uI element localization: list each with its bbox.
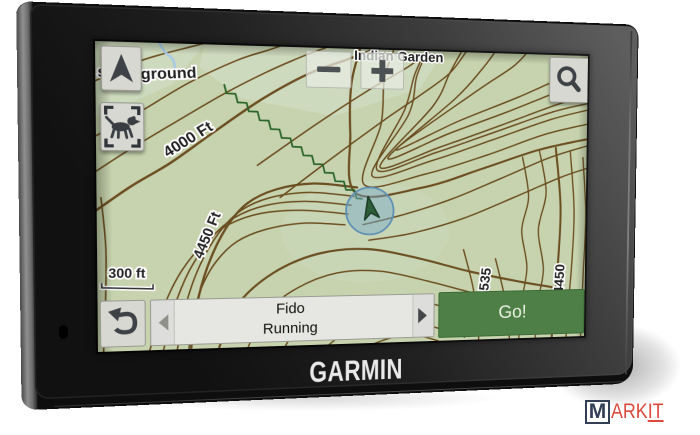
svg-text:300 ft: 300 ft bbox=[108, 267, 145, 282]
svg-text:ground: ground bbox=[140, 65, 197, 83]
svg-text:4000 Ft: 4000 Ft bbox=[160, 118, 216, 161]
svg-text:4450 Ft: 4450 Ft bbox=[190, 210, 224, 261]
svg-text:535: 535 bbox=[477, 267, 494, 291]
